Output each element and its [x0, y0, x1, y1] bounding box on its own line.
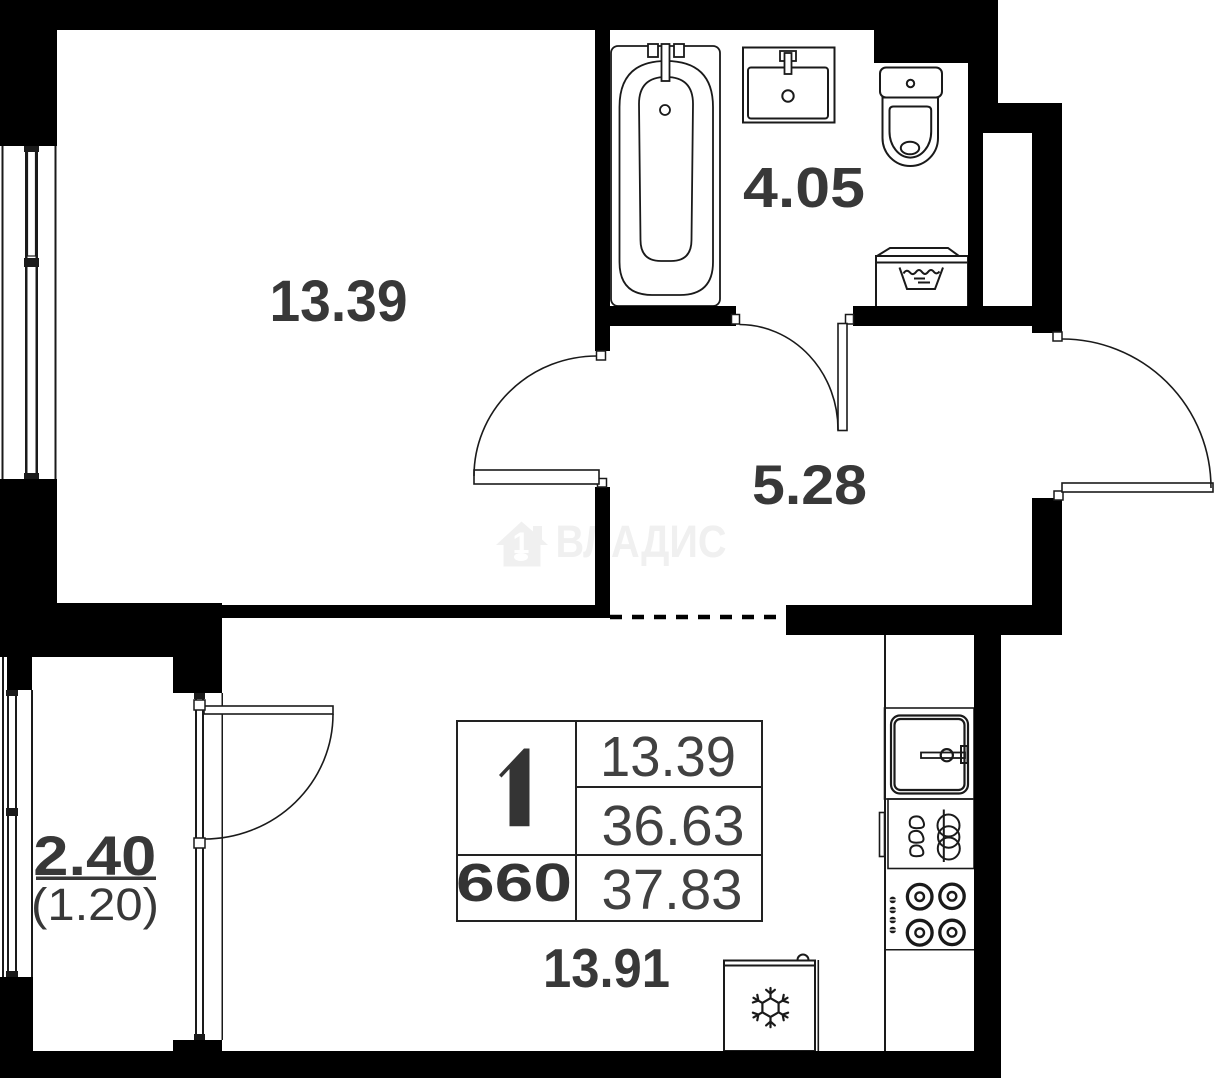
svg-text:660: 660 [456, 853, 572, 913]
svg-text:5.28: 5.28 [752, 453, 867, 516]
svg-text:13.91: 13.91 [543, 937, 670, 999]
svg-text:37.83: 37.83 [602, 858, 743, 922]
svg-text:ВЛАДИС: ВЛАДИС [556, 516, 727, 567]
svg-text:(1.20): (1.20) [31, 879, 159, 930]
svg-text:13.39: 13.39 [600, 725, 736, 789]
svg-text:13.39: 13.39 [270, 269, 408, 334]
svg-text:36.63: 36.63 [602, 794, 745, 858]
svg-text:4.05: 4.05 [743, 156, 865, 220]
